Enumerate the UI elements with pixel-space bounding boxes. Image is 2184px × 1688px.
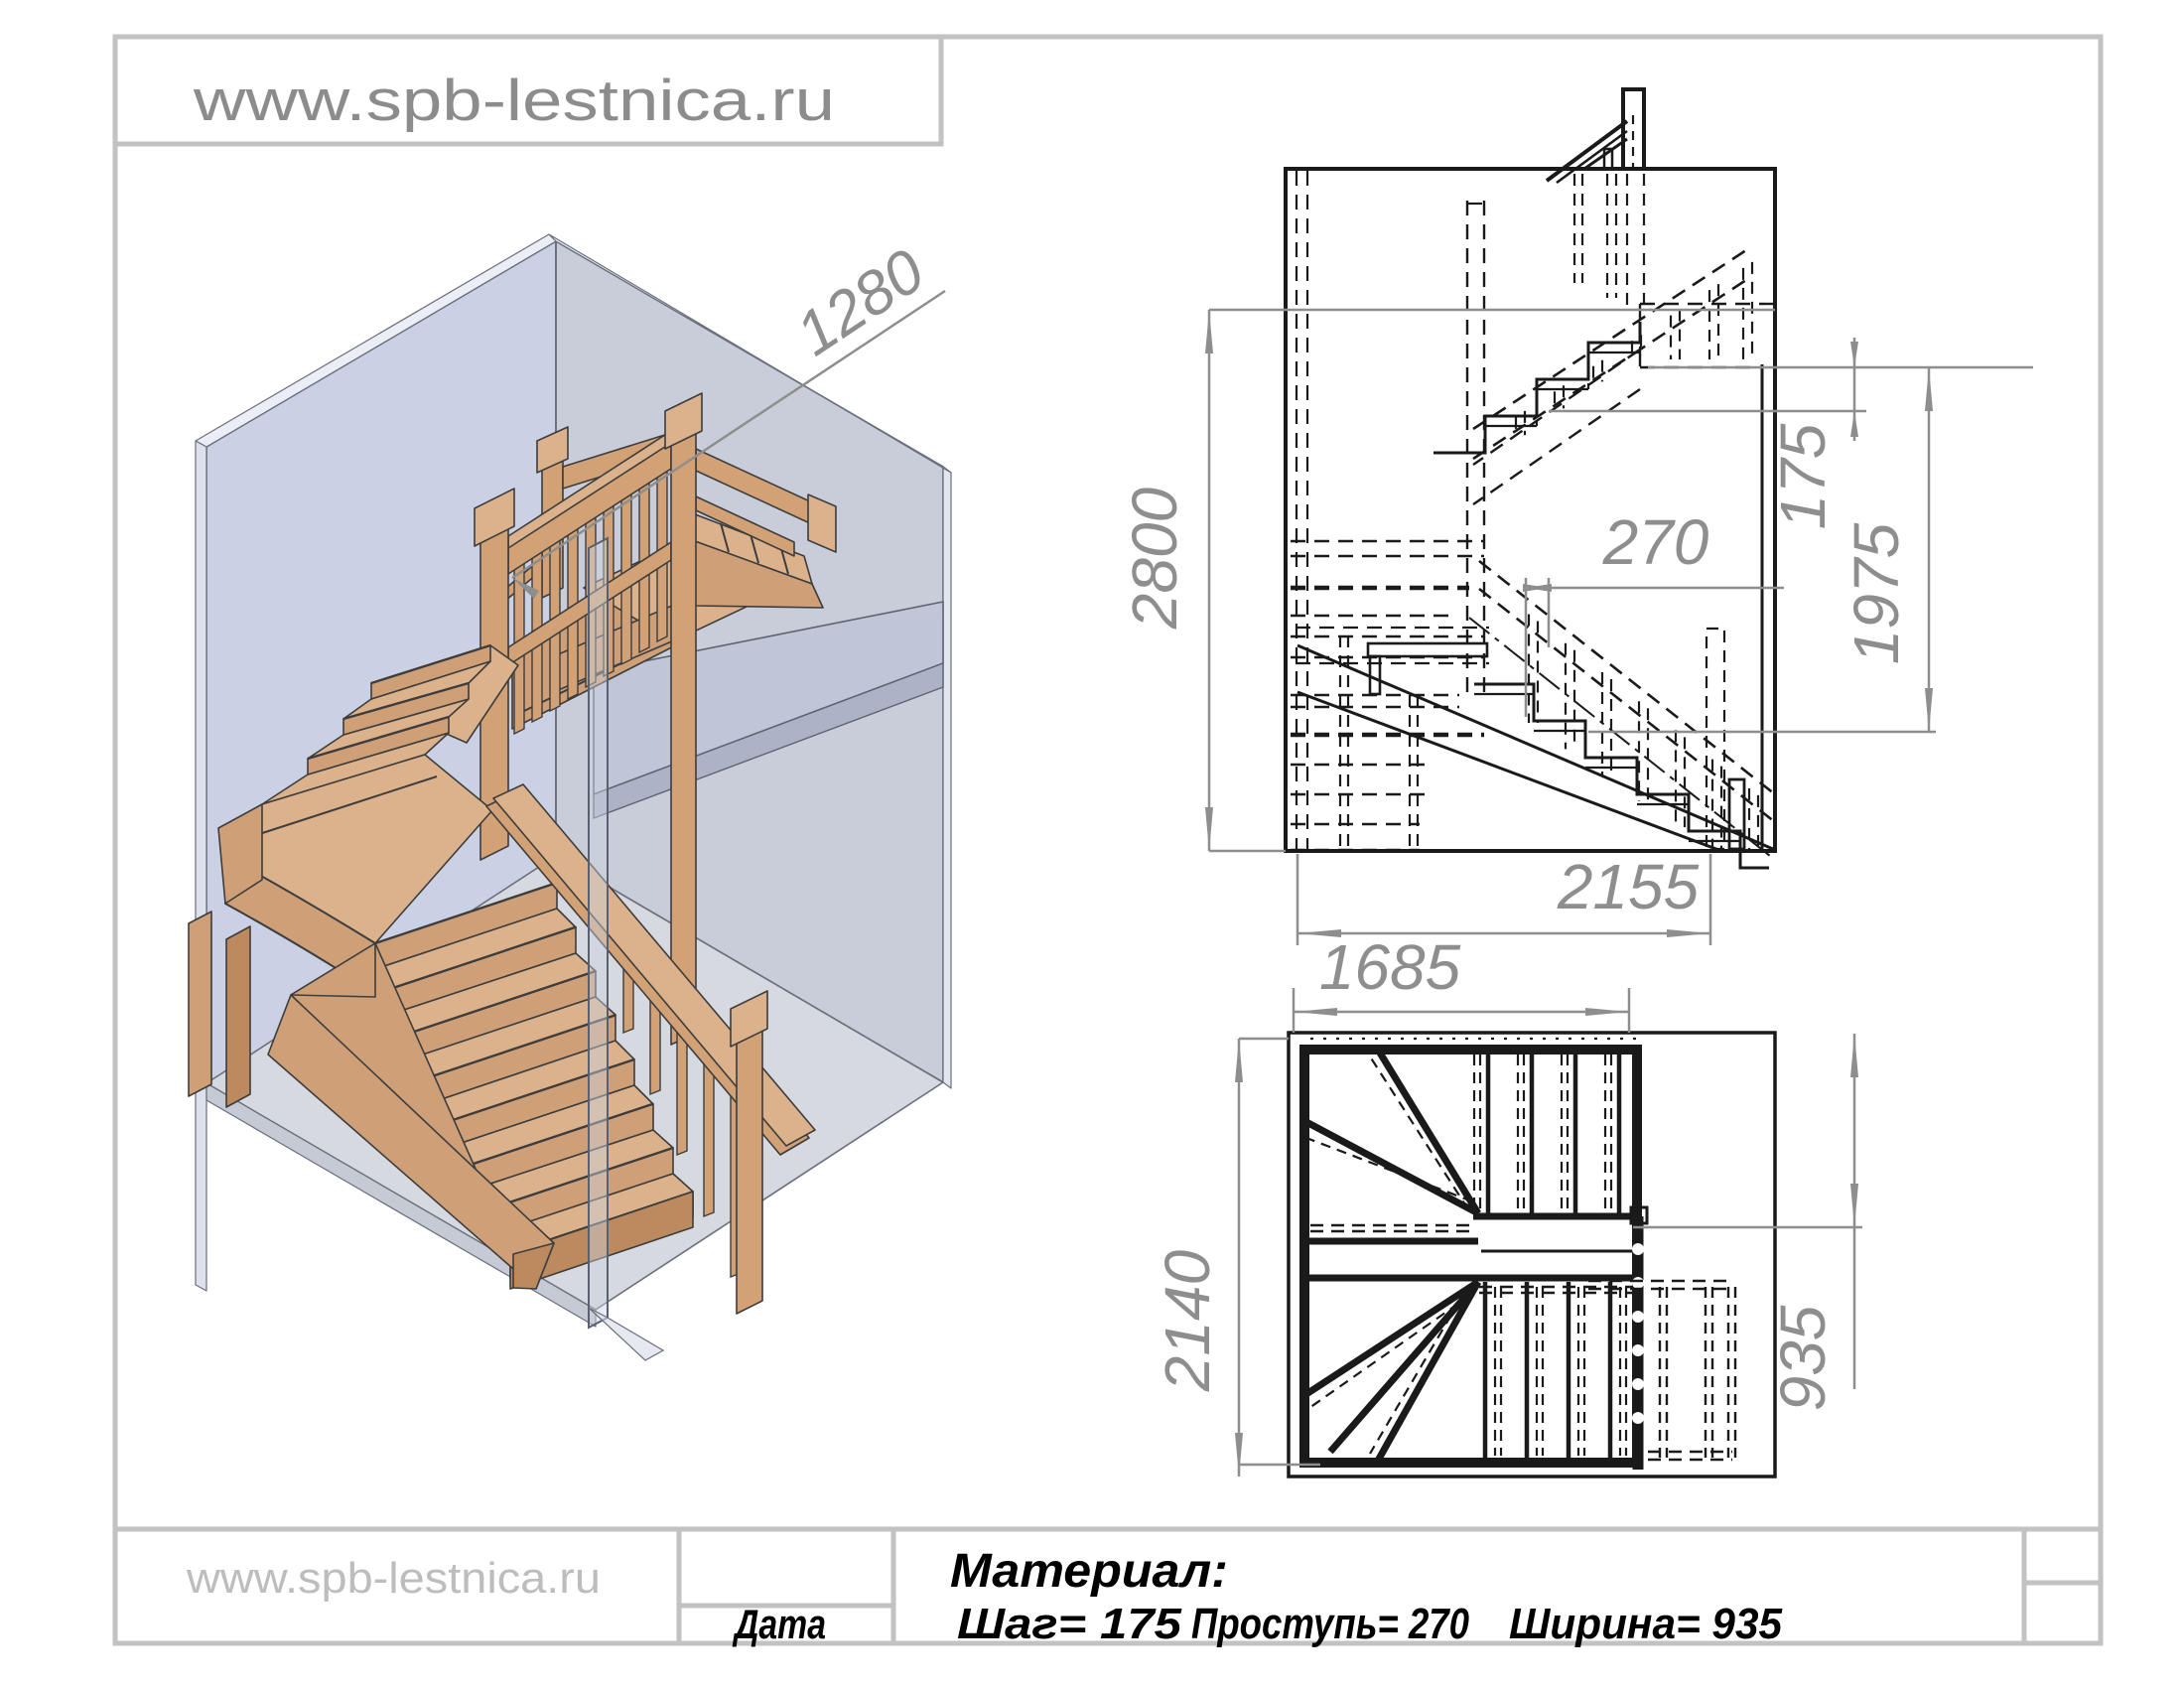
svg-text:Шаг= 175: Шаг= 175 bbox=[957, 1600, 1182, 1648]
svg-text:www.spb-lestnica.ru: www.spb-lestnica.ru bbox=[193, 69, 835, 133]
svg-text:Проступь= 270: Проступь= 270 bbox=[1191, 1600, 1469, 1648]
svg-text:175: 175 bbox=[1767, 423, 1839, 529]
svg-text:2800: 2800 bbox=[1119, 487, 1190, 630]
svg-text:1685: 1685 bbox=[1319, 931, 1461, 1003]
svg-text:1975: 1975 bbox=[1841, 522, 1912, 664]
svg-text:Дата: Дата bbox=[733, 1601, 826, 1647]
svg-text:270: 270 bbox=[1602, 506, 1709, 578]
svg-text:935: 935 bbox=[1767, 1305, 1839, 1411]
svg-text:2140: 2140 bbox=[1152, 1249, 1223, 1392]
svg-text:www.spb-lestnica.ru: www.spb-lestnica.ru bbox=[186, 1554, 601, 1603]
svg-text:Материал:: Материал: bbox=[950, 1545, 1228, 1598]
svg-text:2155: 2155 bbox=[1557, 851, 1700, 922]
svg-text:Ширина= 935: Ширина= 935 bbox=[1509, 1600, 1783, 1648]
